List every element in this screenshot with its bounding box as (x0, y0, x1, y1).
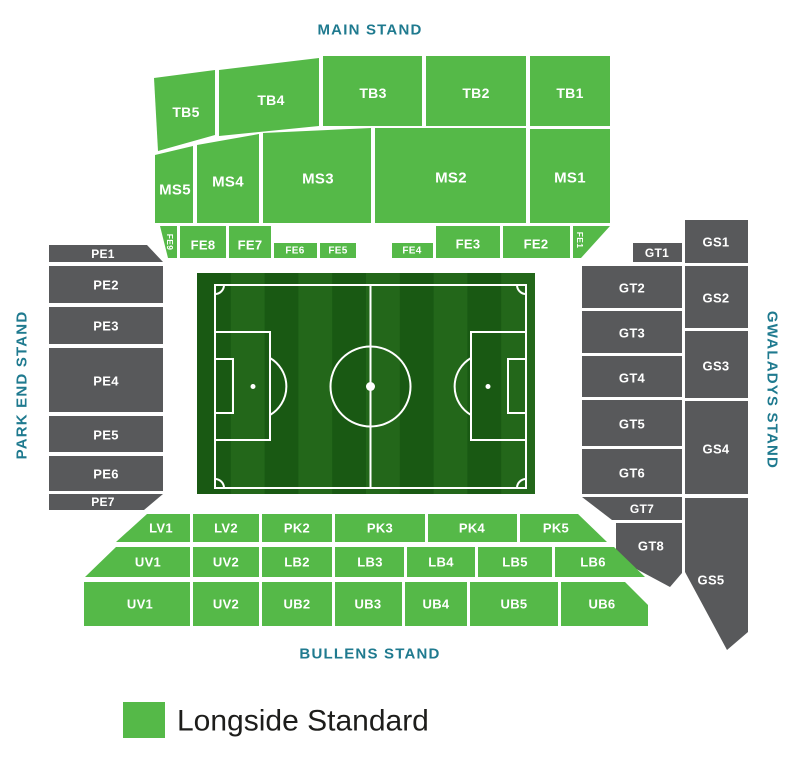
section-ub3[interactable]: UB3 (335, 582, 402, 626)
section-gs4: GS4 (685, 401, 748, 494)
football-pitch (197, 273, 535, 494)
section-label: GS1 (703, 235, 730, 250)
section-label: TB2 (462, 85, 489, 101)
section-label: MS3 (302, 171, 334, 188)
section-ms2[interactable]: MS2 (375, 128, 526, 223)
section-lb5[interactable]: LB5 (478, 547, 552, 577)
section-label: UB2 (284, 597, 311, 612)
section-fe5[interactable]: FE5 (320, 243, 356, 258)
section-label: UV2 (213, 555, 239, 570)
section-tb2[interactable]: TB2 (426, 56, 526, 126)
section-label: PK2 (284, 521, 310, 536)
section-label: GT2 (619, 281, 645, 296)
section-ub4[interactable]: UB4 (405, 582, 467, 626)
section-uv2-middle[interactable]: UV2 (193, 547, 259, 577)
section-label: GS5 (698, 573, 725, 588)
section-gs3: GS3 (685, 331, 748, 398)
section-label: FE9 (165, 234, 175, 251)
section-lv1[interactable]: LV1 (116, 514, 190, 542)
section-gt1: GT1 (633, 243, 682, 262)
section-label: GT8 (638, 539, 664, 554)
section-gt7: GT7 (582, 497, 682, 520)
section-pk4[interactable]: PK4 (428, 514, 517, 542)
section-label: LB4 (428, 555, 454, 570)
section-pe7: PE7 (49, 494, 163, 510)
section-label: PK5 (543, 521, 569, 536)
section-label: TB1 (556, 85, 583, 101)
section-label: PE6 (93, 467, 118, 482)
section-label: GT7 (630, 502, 654, 516)
section-label: GT6 (619, 466, 645, 481)
section-gs5: GS5 (685, 498, 748, 650)
section-label: MS2 (435, 170, 467, 187)
legend: Longside Standard (123, 702, 429, 738)
section-label: GS4 (703, 442, 730, 457)
section-fe2[interactable]: FE2 (503, 226, 570, 258)
section-gt2: GT2 (582, 266, 682, 308)
section-label: UV1 (127, 597, 153, 612)
section-label: FE5 (328, 246, 347, 257)
section-ub5[interactable]: UB5 (470, 582, 558, 626)
section-label: LB5 (502, 555, 527, 570)
section-ub6[interactable]: UB6 (561, 582, 648, 626)
section-lb4[interactable]: LB4 (407, 547, 475, 577)
section-label: UV2 (213, 597, 239, 612)
section-gt5: GT5 (582, 400, 682, 446)
legend-swatch-longside-standard (123, 702, 165, 738)
section-uv1-lower[interactable]: UV1 (84, 582, 190, 626)
section-fe8[interactable]: FE8 (180, 226, 226, 258)
legend-label: Longside Standard (177, 705, 429, 738)
section-label: PK3 (367, 521, 393, 536)
section-label: UB4 (423, 597, 450, 612)
section-label: TB5 (172, 104, 199, 120)
section-pe1: PE1 (49, 245, 163, 262)
section-pk2[interactable]: PK2 (262, 514, 332, 542)
section-label: MS5 (159, 182, 191, 199)
section-tb5[interactable]: TB5 (154, 70, 215, 151)
stadium-seat-map: MAIN STAND PARK END STAND GWALADYS STAND… (0, 0, 798, 766)
section-label: FE1 (575, 232, 585, 249)
section-label: UV1 (135, 555, 161, 570)
section-uv2-lower[interactable]: UV2 (193, 582, 259, 626)
section-gs1: GS1 (685, 220, 748, 263)
section-fe3[interactable]: FE3 (436, 226, 500, 258)
section-fe1[interactable]: FE1 (573, 226, 610, 258)
gwaladys-stand-label: GWALADYS STAND (764, 311, 781, 469)
section-label: LB6 (580, 555, 605, 570)
section-label: PE1 (91, 247, 115, 261)
section-label: LB2 (284, 555, 309, 570)
section-label: UB5 (501, 597, 528, 612)
section-pk3[interactable]: PK3 (335, 514, 425, 542)
section-label: PE3 (93, 319, 118, 334)
section-label: FE7 (238, 238, 263, 253)
section-gt8: GT8 (616, 523, 682, 587)
section-label: FE2 (524, 237, 549, 252)
section-pe2: PE2 (49, 266, 163, 303)
section-label: LV1 (149, 521, 173, 536)
section-fe7[interactable]: FE7 (229, 226, 271, 258)
section-fe9[interactable]: FE9 (160, 226, 177, 258)
section-pe5: PE5 (49, 416, 163, 452)
section-label: UB6 (589, 597, 616, 612)
section-uv1-middle[interactable]: UV1 (85, 547, 190, 577)
section-label: LB3 (357, 555, 382, 570)
section-gs2: GS2 (685, 266, 748, 328)
section-label: PE2 (93, 278, 118, 293)
section-pe6: PE6 (49, 456, 163, 491)
section-lb3[interactable]: LB3 (335, 547, 404, 577)
section-lv2[interactable]: LV2 (193, 514, 259, 542)
section-fe6[interactable]: FE6 (274, 243, 317, 258)
section-label: GT4 (619, 371, 646, 386)
section-label: GT1 (645, 246, 669, 260)
section-label: GT5 (619, 417, 645, 432)
section-label: LV2 (214, 521, 238, 536)
section-label: TB3 (359, 85, 386, 101)
section-label: GS3 (703, 359, 730, 374)
section-gt4: GT4 (582, 356, 682, 397)
section-pe3: PE3 (49, 307, 163, 344)
section-ms1[interactable]: MS1 (530, 129, 610, 223)
section-label: TB4 (257, 92, 284, 108)
section-tb1[interactable]: TB1 (530, 56, 610, 126)
section-label: PE7 (91, 495, 115, 509)
section-label: PK4 (459, 521, 486, 536)
section-label: GT3 (619, 326, 645, 341)
section-ub2[interactable]: UB2 (262, 582, 332, 626)
section-ms4[interactable]: MS4 (197, 134, 259, 223)
section-ms5[interactable]: MS5 (155, 146, 193, 223)
section-label: PE5 (93, 428, 118, 443)
main-stand-label: MAIN STAND (317, 22, 422, 39)
section-label: FE4 (402, 246, 421, 257)
section-label: MS1 (554, 170, 586, 187)
section-fe4[interactable]: FE4 (392, 243, 433, 258)
bullens-stand-label: BULLENS STAND (299, 646, 440, 663)
section-ms3[interactable]: MS3 (263, 128, 371, 223)
section-label: FE8 (191, 238, 216, 253)
section-label: FE6 (285, 246, 304, 257)
park-end-stand-label: PARK END STAND (14, 311, 31, 460)
section-tb3[interactable]: TB3 (323, 56, 422, 126)
section-gt6: GT6 (582, 449, 682, 494)
section-label: MS4 (212, 174, 244, 191)
section-pe4: PE4 (49, 348, 163, 412)
section-label: GS2 (703, 291, 730, 306)
section-label: FE3 (456, 237, 481, 252)
section-lb2[interactable]: LB2 (262, 547, 332, 577)
section-label: UB3 (355, 597, 382, 612)
section-tb4[interactable]: TB4 (219, 58, 319, 136)
section-pk5[interactable]: PK5 (520, 514, 607, 542)
section-gt3: GT3 (582, 311, 682, 353)
section-label: PE4 (93, 374, 119, 389)
